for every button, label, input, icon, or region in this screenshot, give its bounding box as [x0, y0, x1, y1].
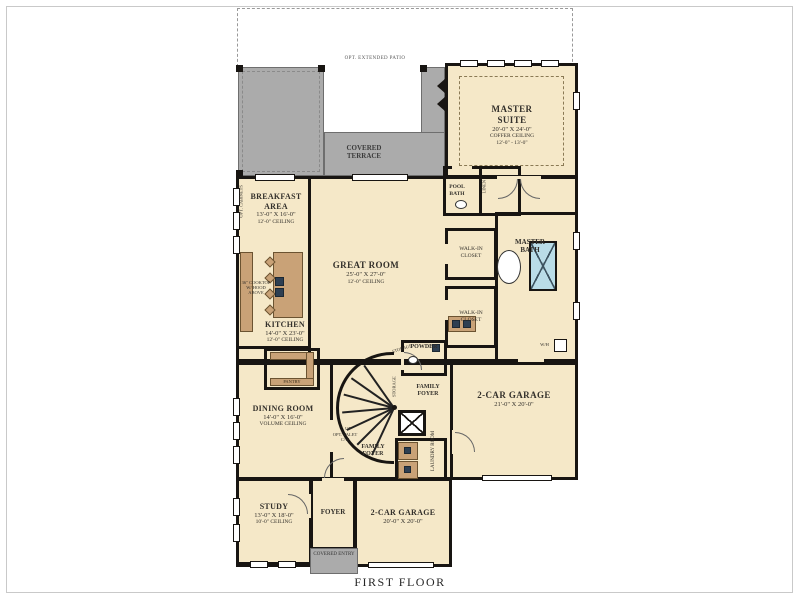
plan-title: FIRST FLOOR	[320, 575, 480, 589]
bay-window-icon	[437, 78, 446, 94]
window	[233, 524, 240, 542]
stair-newel	[392, 405, 397, 410]
cooktop-icon	[275, 288, 284, 297]
cooktop-icon	[275, 277, 284, 286]
breakfast-label: BREAKFAST AREA 13'-0" X 16'-0" 12'-0" CE…	[247, 192, 305, 226]
door-opening	[518, 359, 544, 362]
opt-valet-label: OPT. VALET C/W	[332, 432, 358, 442]
window	[233, 498, 240, 516]
elevator-icon	[398, 410, 426, 436]
garage-right-walls	[450, 362, 578, 480]
washer-knob	[404, 447, 411, 454]
window	[541, 60, 559, 67]
window	[573, 92, 580, 110]
water-heater-label: W/H	[536, 342, 553, 347]
dining-right-wall-a	[330, 362, 333, 420]
wic-lower-label: WALK-IN CLOSET	[450, 310, 492, 323]
master-suite-label: MASTER SUITE 20'-0" X 24'-0" COFFER CEIL…	[481, 104, 543, 147]
dining-label: DINING ROOM 14'-0" X 16'-0" VOLUME CEILI…	[252, 404, 314, 428]
door-opening	[445, 244, 448, 264]
storage-label-under-stair: STORAGE	[391, 369, 396, 405]
wic-upper-label: WALK-IN CLOSET	[450, 246, 492, 259]
window	[233, 398, 240, 416]
pool-bath-label: POOL BATH	[444, 184, 470, 197]
window	[460, 60, 478, 67]
cooktop-note: 36" COOKTOP W/ HOOD ABOVE	[239, 280, 273, 296]
window	[233, 422, 240, 440]
bay-window-icon	[437, 96, 446, 112]
family-foyer-bottom-label: FAMILY FOYER	[352, 444, 394, 458]
study-label: STUDY 13'-0" X 18'-0" 10'-0" CEILING	[244, 502, 304, 526]
up-label: UP	[340, 426, 356, 431]
powder-label: POWDER	[402, 344, 446, 351]
covered-terrace-left	[238, 67, 324, 176]
toilet-icon	[408, 356, 418, 364]
opt-extended-patio-label: OPT. EXTENDED PATIO	[300, 56, 450, 62]
window	[233, 446, 240, 464]
foyer-label: FOYER	[313, 508, 353, 516]
covered-entry-label: COVERED ENTRY	[312, 552, 356, 558]
kitchen-label: KITCHEN 14'-0" X 23'-0" 12'-0" CEILING	[252, 320, 318, 344]
master-bath-label: MASTER BATH	[506, 238, 554, 255]
dryer-knob	[404, 466, 411, 473]
window	[514, 60, 532, 67]
door-opening	[452, 166, 472, 169]
terrace-slider-door	[352, 174, 408, 181]
floor-plan: OPT. EXTENDED PATIO COVERED TERRACE COVE…	[0, 0, 800, 600]
pantry-label: PANTRY	[272, 379, 312, 384]
great-room-label: GREAT ROOM 25'-0" X 27'-0" 12'-0" CEILIN…	[330, 260, 402, 285]
door-opening	[322, 478, 344, 481]
terrace-post	[236, 65, 243, 72]
garage-door-right	[482, 475, 552, 481]
window	[573, 302, 580, 320]
garage-right-label: 2-CAR GARAGE 21'-0" X 20'-0"	[474, 390, 554, 409]
opt-cabinets-label: OPT. CABINETS	[238, 188, 243, 218]
window	[278, 561, 296, 568]
linen-label: LINEN	[481, 176, 486, 198]
bathtub-icon	[497, 250, 521, 284]
breakfast-slider-door	[255, 174, 295, 181]
water-heater-icon	[554, 339, 567, 352]
terrace-post	[420, 65, 427, 72]
garage-bottom-label: 2-CAR GARAGE 20'-0" X 20'-0"	[364, 508, 442, 525]
garage-door-bottom	[368, 562, 434, 568]
laundry-label: LAUNDRY ROOM	[431, 431, 437, 471]
window	[250, 561, 268, 568]
terrace-post	[318, 65, 325, 72]
window	[573, 232, 580, 250]
door-opening	[308, 494, 311, 518]
toilet-icon	[455, 200, 467, 209]
window	[233, 236, 240, 254]
window	[487, 60, 505, 67]
family-foyer-right-label: FAMILY FOYER	[408, 384, 448, 398]
covered-terrace-label: COVERED TERRACE	[335, 144, 393, 161]
